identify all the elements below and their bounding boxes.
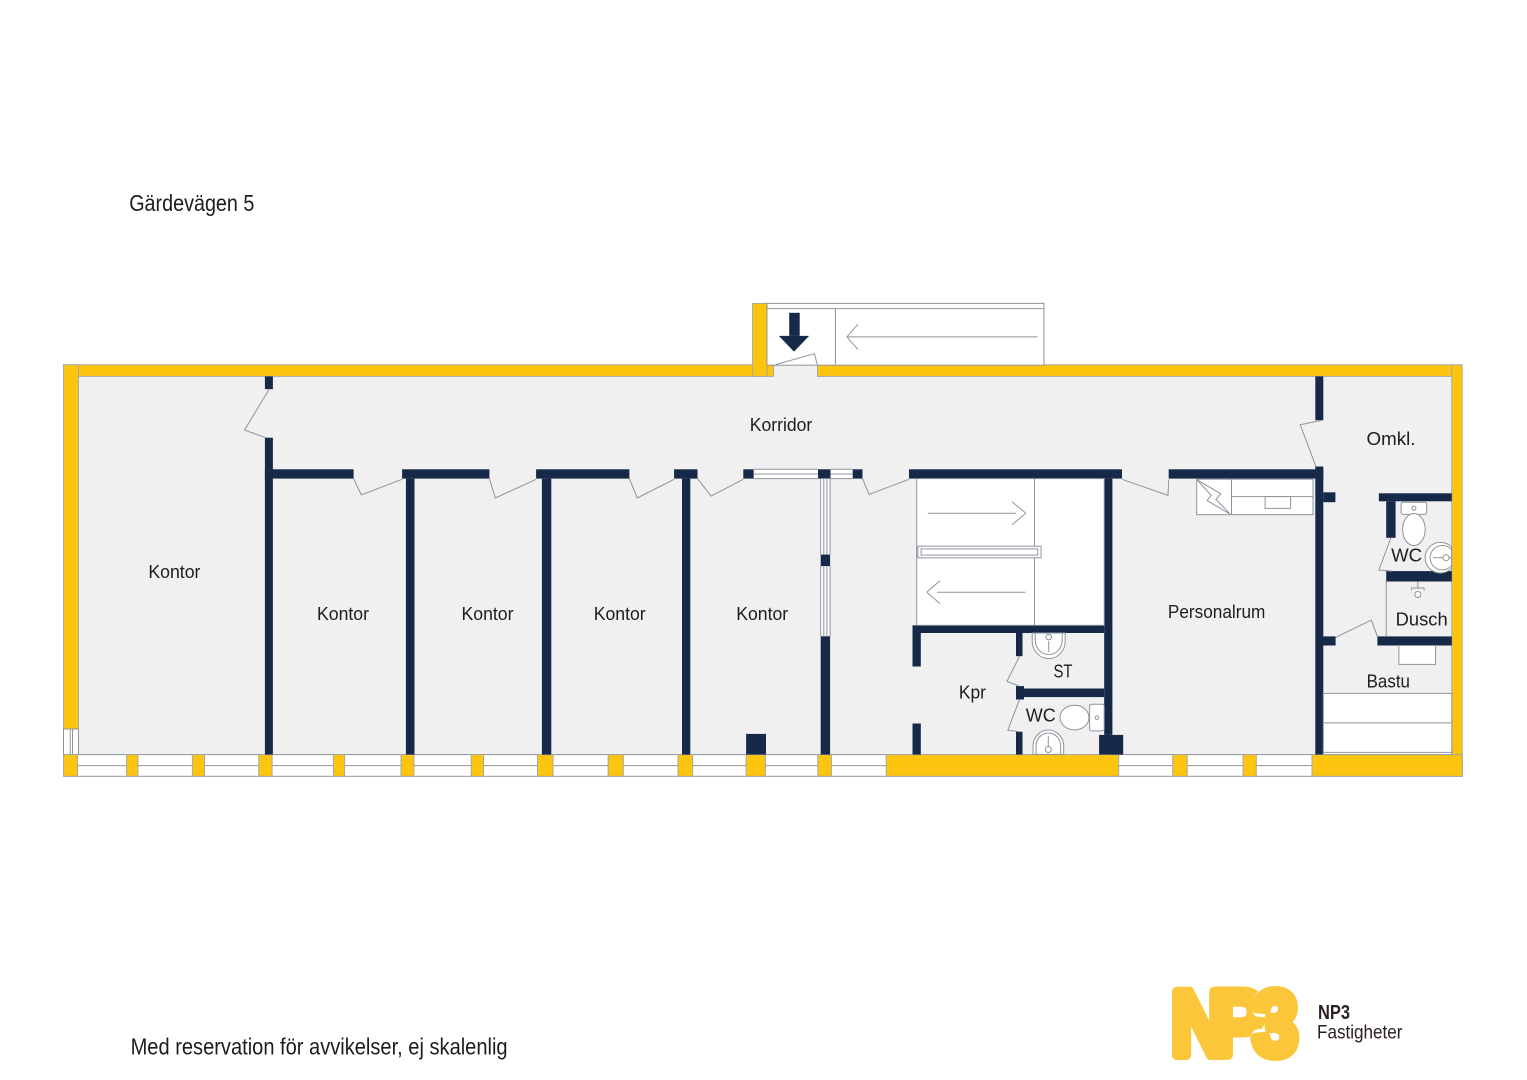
svg-text:Korridor: Korridor (750, 415, 813, 435)
svg-text:WC: WC (1026, 706, 1056, 726)
svg-text:Med reservation för avvikelser: Med reservation för avvikelser, ej skale… (131, 1034, 508, 1060)
svg-text:Dusch: Dusch (1396, 610, 1448, 630)
svg-text:WC: WC (1391, 546, 1422, 566)
svg-text:3: 3 (1253, 973, 1298, 1075)
svg-text:Kontor: Kontor (594, 604, 646, 624)
svg-text:Personalrum: Personalrum (1168, 602, 1266, 622)
svg-text:Gärdevägen 5: Gärdevägen 5 (129, 190, 254, 216)
svg-text:Kontor: Kontor (317, 604, 369, 624)
svg-text:Kpr: Kpr (959, 683, 986, 703)
svg-text:Kontor: Kontor (148, 562, 200, 582)
svg-text:Omkl.: Omkl. (1367, 429, 1416, 449)
svg-text:Kontor: Kontor (462, 604, 514, 624)
svg-text:Bastu: Bastu (1367, 672, 1410, 692)
svg-text:Kontor: Kontor (736, 604, 788, 624)
svg-text:Fastigheter: Fastigheter (1317, 1022, 1403, 1044)
svg-text:ST: ST (1054, 661, 1073, 681)
